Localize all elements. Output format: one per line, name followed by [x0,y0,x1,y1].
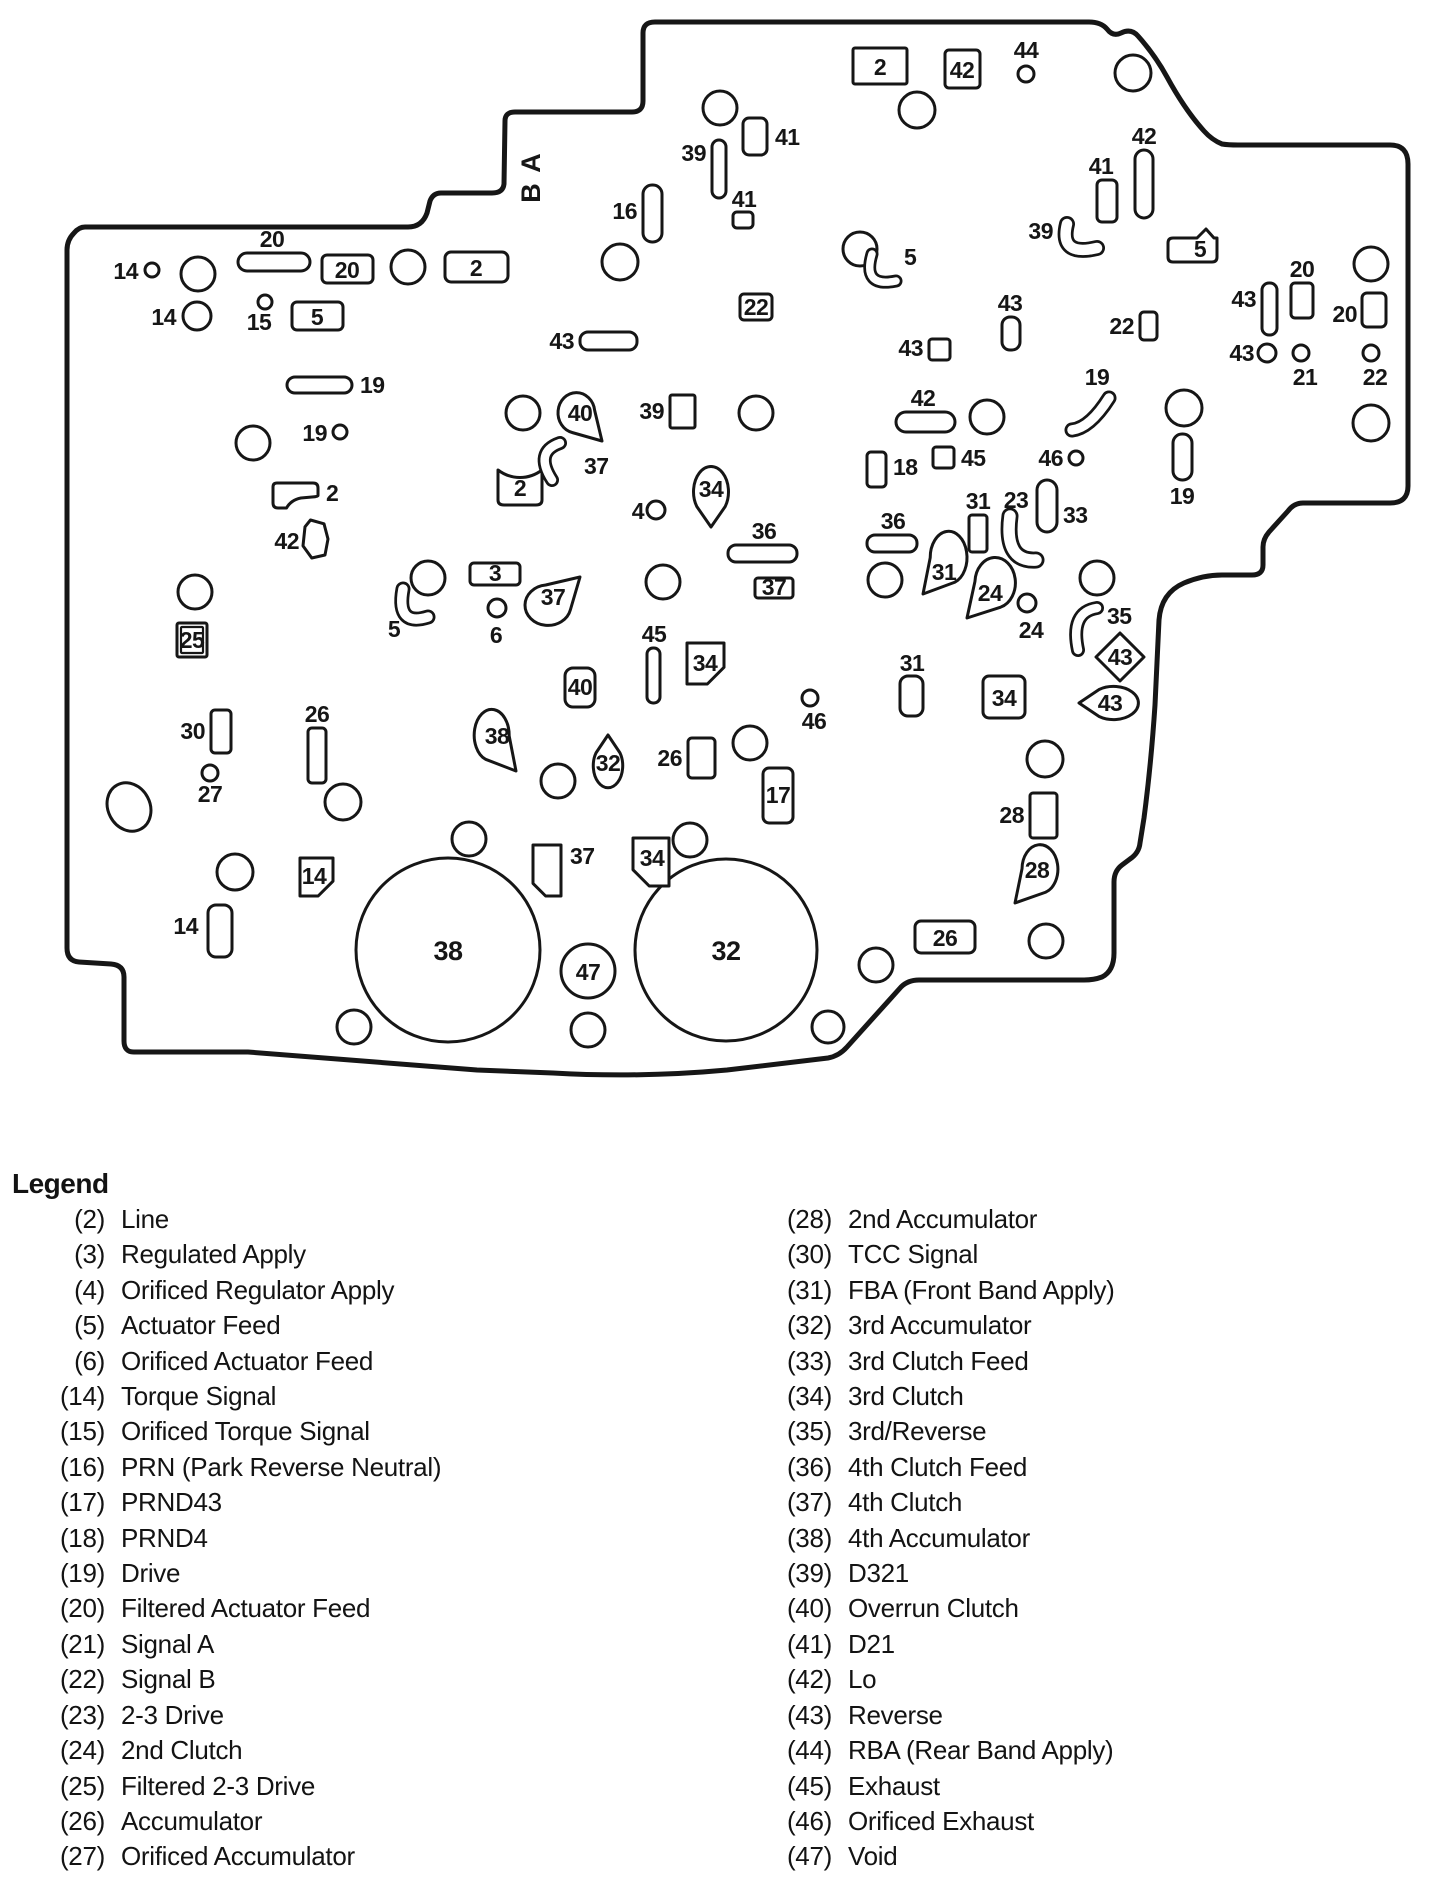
legend-column-right: (28)2nd Accumulator(30)TCC Signal(31)FBA… [742,1202,1115,1875]
legend-title: Legend [12,1168,109,1200]
hole [673,823,707,857]
hole-41: 41 [732,186,757,228]
hole [452,822,486,856]
hole-32: 32 [593,735,622,788]
hole-14: 14 [300,858,333,896]
hole-number-label: 42 [274,528,299,554]
legend-item: (22)Signal B [0,1662,441,1697]
legend-item: (2)Line [0,1202,441,1237]
legend-item: (18)PRND4 [0,1521,441,1556]
legend-item: (32)3rd Accumulator [742,1308,1115,1343]
hole-number-label: 47 [576,959,601,985]
legend-item-number: (3) [0,1237,105,1272]
hole-21: 21 [1293,345,1318,390]
hole-28: 28 [1015,845,1058,903]
legend-item-number: (16) [0,1450,105,1485]
hole-number-label: 31 [966,488,991,514]
legend-item-label: Regulated Apply [121,1237,306,1272]
hole-number-label: 36 [881,508,906,534]
hole-5: 5 [1168,229,1217,262]
legend-item-number: (32) [742,1308,832,1343]
hole-37: 37 [525,577,580,625]
hole-number-label: 3 [489,560,501,586]
legend-item-label: RBA (Rear Band Apply) [848,1733,1113,1768]
legend-item: (20)Filtered Actuator Feed [0,1591,441,1626]
legend-item: (6)Orificed Actuator Feed [0,1344,441,1379]
hole [970,400,1004,434]
hole-40: 40 [565,668,595,707]
hole-number-label: 20 [260,226,285,252]
hole-number-label: 44 [1014,37,1039,63]
hole-19: 19 [302,420,347,446]
hole-number-label: 19 [1170,483,1195,509]
hole-number-label: 4 [632,498,645,524]
hole-31: 31 [966,488,991,552]
hole-5: 5 [388,589,428,642]
legend-item-label: Filtered 2-3 Drive [121,1769,315,1804]
legend-item: (14)Torque Signal [0,1379,441,1414]
hole-22: 22 [1109,312,1157,340]
hole-20: 20 [238,226,310,271]
legend-item-number: (33) [742,1344,832,1379]
hole-number-label: 37 [541,584,566,610]
legend-item: (21)Signal A [0,1627,441,1662]
legend-item-label: 3rd Clutch Feed [848,1344,1028,1379]
legend-item-label: Overrun Clutch [848,1591,1019,1626]
legend-item: (47)Void [742,1839,1115,1874]
hole-number-label: 42 [911,385,936,411]
legend-item-label: 3rd Clutch [848,1379,964,1414]
hole-number-label: 27 [198,781,223,807]
hole-number-label: 43 [1231,286,1256,312]
hole-number-label: 43 [1098,690,1123,716]
legend-item: (17)PRND43 [0,1485,441,1520]
hole-14: 14 [173,905,232,957]
legend-item: (16)PRN (Park Reverse Neutral) [0,1450,441,1485]
hole-20: 20 [322,255,373,283]
hole-36: 36 [728,518,797,562]
legend-item-number: (40) [742,1591,832,1626]
hole-14: 14 [151,302,211,330]
hole-24: 24 [967,558,1015,618]
hole-37: 37 [533,843,595,896]
hole [217,854,253,890]
legend-item-number: (38) [742,1521,832,1556]
hole-number-label: 5 [311,304,324,330]
hole-number-label: 45 [961,445,986,471]
hole-38: 38 [474,709,516,771]
legend-item-number: (17) [0,1485,105,1520]
legend-item-number: (26) [0,1804,105,1839]
hole-47: 47 [561,944,615,998]
hole-37: 37 [755,574,793,600]
hole-number-label: 22 [1363,364,1388,390]
hole-33: 33 [1037,480,1088,532]
hole-5: 5 [870,244,917,282]
hole-number-label: 34 [992,685,1017,711]
legend-item-number: (21) [0,1627,105,1662]
hole [391,250,425,284]
hole-number-label: 32 [596,750,621,776]
hole-number-label: 43 [549,328,574,354]
hole-number-label: 43 [998,290,1023,316]
hole-number-label: 2 [326,480,338,506]
hole-43: 43 [998,290,1023,350]
hole-number-label: 5 [388,616,401,642]
hole [1353,405,1389,441]
hole-43: 43 [1231,283,1277,335]
hole [178,575,212,609]
legend-item-label: PRND4 [121,1521,208,1556]
hole-number-label: 14 [151,304,176,330]
legend-item: (19)Drive [0,1556,441,1591]
legend-item-label: TCC Signal [848,1237,978,1272]
spacer-plate-diagram-page: AB14141520205191924225530272614143847322… [0,0,1456,1890]
legend-item-number: (20) [0,1591,105,1626]
legend-item-label: PRND43 [121,1485,222,1520]
legend-item-label: Exhaust [848,1769,940,1804]
hole-number-label: 34 [640,845,665,871]
hole-18: 18 [867,452,918,487]
legend-item: (31)FBA (Front Band Apply) [742,1273,1115,1308]
hole [337,1010,371,1044]
legend-item: (24)2nd Clutch [0,1733,441,1768]
hole-number-label: 16 [612,198,637,224]
hole-14: 14 [113,258,159,284]
hole-number-label: 2 [514,475,526,501]
legend-item: (15)Orificed Torque Signal [0,1414,441,1449]
legend-item: (38)4th Accumulator [742,1521,1115,1556]
hole-24: 24 [1018,594,1044,643]
hole-43: 43 [1229,340,1276,366]
hole-number-label: 23 [1004,487,1029,513]
hole [602,244,638,280]
legend-item: (30)TCC Signal [742,1237,1115,1272]
hole-42: 42 [896,385,955,432]
legend-item: (35)3rd/Reverse [742,1414,1115,1449]
hole-number-label: 32 [711,936,740,966]
hole-3: 3 [470,560,520,586]
hole-number-label: 21 [1293,364,1318,390]
legend-item-label: 4th Accumulator [848,1521,1030,1556]
hole-number-label: 6 [490,622,502,648]
hole-31: 31 [900,650,925,716]
legend-item-number: (23) [0,1698,105,1733]
hole-16: 16 [612,185,662,242]
hole-34: 34 [687,643,724,684]
legend-item-label: Signal A [121,1627,214,1662]
legend-item: (42)Lo [742,1662,1115,1697]
legend-item-number: (5) [0,1308,105,1343]
legend-item-label: D321 [848,1556,909,1591]
hole-number-label: 40 [568,400,593,426]
hole [1354,247,1388,281]
hole-number-label: 19 [1085,364,1110,390]
legend-item-label: 2nd Clutch [121,1733,242,1768]
hole-26: 26 [657,738,715,778]
hole [703,91,737,125]
hole-34: 34 [983,676,1025,718]
legend-item-label: Orificed Accumulator [121,1839,355,1874]
hole-number-label: 36 [752,518,777,544]
hole [1115,55,1151,91]
hole-36: 36 [867,508,917,552]
legend-item-number: (30) [742,1237,832,1272]
hole-27: 27 [198,765,223,807]
hole-number-label: 46 [1038,445,1063,471]
hole-number-label: 30 [180,718,205,744]
hole-45: 45 [933,445,986,471]
hole-38: 38 [356,858,540,1042]
legend-item-number: (19) [0,1556,105,1591]
hole-number-label: 45 [642,621,667,647]
legend-item: (40)Overrun Clutch [742,1591,1115,1626]
legend-item-number: (14) [0,1379,105,1414]
hole-number-label: 43 [1229,340,1254,366]
hole-number-label: 5 [1194,236,1207,262]
legend-item-number: (22) [0,1662,105,1697]
legend-item: (46)Orificed Exhaust [742,1804,1115,1839]
hole-19: 19 [287,372,385,398]
hole-2: 2 [273,480,338,508]
hole-number-label: 34 [693,650,718,676]
legend-item-number: (39) [742,1556,832,1591]
legend-item-label: Orificed Torque Signal [121,1414,370,1449]
hole-number-label: 14 [113,258,138,284]
legend-item: (34)3rd Clutch [742,1379,1115,1414]
hole [812,1011,844,1043]
hole [899,92,935,128]
hole [1027,741,1063,777]
legend-item-label: FBA (Front Band Apply) [848,1273,1115,1308]
legend-item: (41)D21 [742,1627,1115,1662]
hole-20: 20 [1290,256,1315,318]
hole-39: 39 [639,395,695,428]
legend-item: (26)Accumulator [0,1804,441,1839]
hole-44: 44 [1014,37,1039,82]
legend-item: (37)4th Clutch [742,1485,1115,1520]
legend-item: (28)2nd Accumulator [742,1202,1115,1237]
hole-17: 17 [763,768,793,823]
legend-item-number: (45) [742,1769,832,1804]
hole-number-label: 14 [302,863,327,889]
legend-item-label: Line [121,1202,169,1237]
hole-number-label: 39 [639,398,664,424]
hole-number-label: 37 [762,574,787,600]
legend-item-label: D21 [848,1627,895,1662]
hole-number-label: 26 [933,925,958,951]
hole-number-label: 37 [570,843,595,869]
hole-number-label: 22 [1109,313,1134,339]
legend-item-label: Torque Signal [121,1379,276,1414]
hole-41: 41 [1089,153,1117,222]
legend-item-label: Orificed Exhaust [848,1804,1034,1839]
hole-25: 25 [177,623,207,657]
hole-40: 40 [558,393,602,441]
hole-number-label: 41 [1089,153,1114,179]
hole-34: 34 [633,838,669,886]
hole [859,948,893,982]
hole-41: 41 [743,118,800,155]
hole-31: 31 [923,531,967,594]
legend-item-label: Filtered Actuator Feed [121,1591,370,1626]
hole-number-label: 31 [900,650,925,676]
hole [541,764,575,798]
ab-stamp-letter: A [516,153,546,173]
legend-item-number: (35) [742,1414,832,1449]
hole [739,396,773,430]
legend-item-number: (2) [0,1202,105,1237]
legend-item-label: Lo [848,1662,876,1697]
hole-number-label: 34 [699,476,724,502]
hole-37: 37 [545,443,609,480]
legend-item: (39)D321 [742,1556,1115,1591]
hole-number-label: 31 [932,559,957,585]
hole [1080,561,1114,595]
legend-item-label: Void [848,1839,897,1874]
hole-number-label: 41 [732,186,757,212]
hole-number-label: 14 [173,913,198,939]
legend-item-label: Orificed Actuator Feed [121,1344,373,1379]
hole-43: 43 [1079,686,1138,719]
legend-item-number: (31) [742,1273,832,1308]
hole-43: 43 [1096,633,1144,681]
legend-item: (5)Actuator Feed [0,1308,441,1343]
hole-number-label: 19 [302,420,327,446]
legend-item-number: (4) [0,1273,105,1308]
legend-item: (23)2-3 Drive [0,1698,441,1733]
hole-19: 19 [1170,434,1195,509]
legend-item: (25)Filtered 2-3 Drive [0,1769,441,1804]
legend-item-number: (34) [742,1379,832,1414]
hole-number-label: 22 [744,294,769,320]
hole-number-label: 20 [1290,256,1315,282]
legend-column-left: (2)Line(3)Regulated Apply(4)Orificed Reg… [0,1202,441,1875]
hole-number-label: 42 [1132,123,1157,149]
legend-item-number: (47) [742,1839,832,1874]
legend-item-label: 2nd Accumulator [848,1202,1037,1237]
hole-number-label: 2 [470,255,482,281]
hole-43: 43 [549,328,637,354]
hole-number-label: 17 [766,782,791,808]
legend-item-number: (46) [742,1804,832,1839]
hole-23: 23 [1004,487,1036,560]
hole-42: 42 [274,520,328,558]
hole-number-label: 33 [1063,502,1088,528]
hole [236,426,270,460]
hole-46: 46 [1038,445,1083,471]
hole [411,561,445,595]
legend-item-label: Drive [121,1556,180,1591]
hole-number-label: 40 [568,674,593,700]
legend-item-number: (28) [742,1202,832,1237]
hole [868,563,902,597]
hole-number-label: 5 [904,244,917,270]
legend-item: (4)Orificed Regulator Apply [0,1273,441,1308]
legend-item-number: (42) [742,1662,832,1697]
hole-6: 6 [488,599,506,648]
legend-item-number: (24) [0,1733,105,1768]
hole-number-label: 41 [775,124,800,150]
legend-item-label: Actuator Feed [121,1308,280,1343]
hole [571,1013,605,1047]
hole [733,726,767,760]
hole-26: 26 [305,701,330,783]
legend-item-label: 3rd/Reverse [848,1414,986,1449]
hole-2: 2 [853,48,907,84]
hole-number-label: 39 [1028,218,1053,244]
hole-number-label: 38 [485,723,510,749]
hole-28: 28 [999,793,1057,838]
legend-item-number: (36) [742,1450,832,1485]
hole-39: 39 [1028,218,1097,250]
hole-42: 42 [1132,123,1157,218]
legend-item: (44)RBA (Rear Band Apply) [742,1733,1115,1768]
legend-item-label: 4th Clutch Feed [848,1450,1027,1485]
hole-42: 42 [945,50,980,88]
hole-5: 5 [292,302,343,330]
hole-number-label: 39 [681,140,706,166]
legend-item-number: (6) [0,1344,105,1379]
hole-number-label: 46 [802,708,827,734]
legend-item-label: 3rd Accumulator [848,1308,1031,1343]
hole-number-label: 19 [360,372,385,398]
hole-number-label: 18 [893,454,918,480]
legend-item: (45)Exhaust [742,1769,1115,1804]
legend-item-number: (15) [0,1414,105,1449]
legend-item-number: (25) [0,1769,105,1804]
legend-item-label: 4th Clutch [848,1485,962,1520]
hole [99,775,160,839]
hole-number-label: 28 [1025,857,1050,883]
hole-45: 45 [642,621,667,703]
hole-number-label: 15 [247,309,272,335]
legend-item: (27)Orificed Accumulator [0,1839,441,1874]
hole-number-label: 26 [305,701,330,727]
hole-number-label: 26 [657,745,682,771]
legend-item-number: (37) [742,1485,832,1520]
legend-item-number: (44) [742,1733,832,1768]
hole-number-label: 20 [335,257,360,283]
hole-26: 26 [915,921,975,953]
hole-number-label: 37 [584,453,609,479]
hole-43: 43 [898,335,950,361]
hole [646,565,680,599]
legend-item-label: Signal B [121,1662,215,1697]
hole-number-label: 42 [950,57,975,83]
hole-number-label: 24 [978,580,1003,606]
legend-item-label: Accumulator [121,1804,262,1839]
legend-item: (43)Reverse [742,1698,1115,1733]
hole-number-label: 2 [874,54,886,80]
hole [1166,390,1202,426]
hole [1029,924,1063,958]
legend-item-number: (43) [742,1698,832,1733]
hole-2: 2 [445,252,508,282]
legend-item-number: (41) [742,1627,832,1662]
legend-item: (33)3rd Clutch Feed [742,1344,1115,1379]
hole-2: 2 [498,470,542,505]
hole-number-label: 43 [898,335,923,361]
hole [181,257,215,291]
legend-item-number: (27) [0,1839,105,1874]
hole-4: 4 [632,498,665,524]
legend-item-label: 2-3 Drive [121,1698,224,1733]
hole-15: 15 [247,295,272,335]
legend-item: (36)4th Clutch Feed [742,1450,1115,1485]
hole-number-label: 20 [1332,301,1357,327]
hole-number-label: 38 [433,936,463,966]
